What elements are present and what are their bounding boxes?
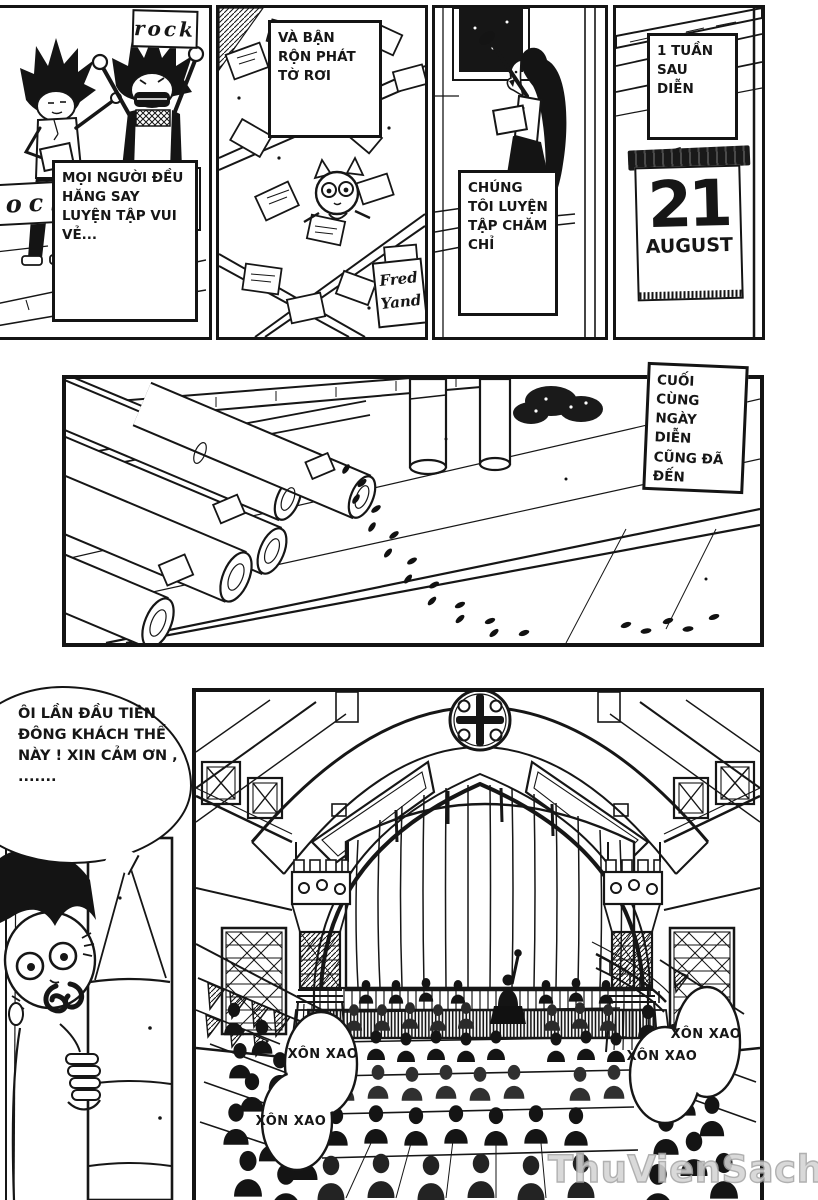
- panel-flyers: Fred Yand VÀ BẬN RỘN PHÁT TỜ RƠI: [216, 5, 428, 340]
- rock-sign-partial: rock: [0, 181, 56, 227]
- caption-one-week: 1 TUẦN SAU DIỄN: [647, 33, 738, 140]
- site-watermark: ThuVienSach.vn: [548, 1148, 818, 1191]
- fred-sign-line2: Yand: [377, 288, 425, 315]
- panel-rehearse: CHÚNG TÔI LUYỆN TẬP CHĂM CHỈ: [432, 5, 608, 340]
- caption-practice: MỌI NGƯỜI ĐỀU HĂNG SAY LUYỆN TẬP VUI VẺ.…: [52, 160, 198, 322]
- calendar: 21 AUGUST: [634, 165, 743, 302]
- manga-page: rock rock MỌI NGƯỜI ĐỀU HĂNG SAY LUYỆN T…: [0, 0, 818, 1200]
- crowd-murmur-left-upper: XÔN XAO: [275, 1047, 371, 1062]
- panel-calendar: 21 AUGUST 1 TUẦN SAU DIỄN: [613, 5, 765, 340]
- calendar-month: AUGUST: [638, 233, 741, 258]
- peeking-man-drawing: [0, 828, 190, 1200]
- crowd-murmur-left-lower: XÔN XAO: [243, 1114, 339, 1129]
- crowd-murmur-right-lower: XÔN XAO: [614, 1049, 710, 1064]
- ceiling-medallion: [450, 692, 510, 750]
- calendar-day: 21: [636, 173, 740, 238]
- crowd-murmur-right-upper: XÔN XAO: [658, 1027, 754, 1042]
- calendar-torn-edge: [640, 290, 742, 300]
- fred-yand-sign: Fred Yand: [372, 258, 428, 329]
- caption-show-day: CUỐI CÙNG NGÀY DIỄN CŨNG ĐÃ ĐẾN: [642, 362, 748, 494]
- column: [88, 838, 172, 1200]
- foliage: [513, 386, 603, 424]
- caption-flyers: VÀ BẬN RỘN PHÁT TỜ RƠI: [268, 20, 382, 138]
- peeking-man: [0, 848, 100, 1200]
- standing-columns: [410, 379, 510, 474]
- caption-rehearse: CHÚNG TÔI LUYỆN TẬP CHĂM CHỈ: [458, 170, 558, 316]
- rock-sign: rock: [132, 9, 199, 49]
- panel-practice: rock rock MỌI NGƯỜI ĐỀU HĂNG SAY LUYỆN T…: [0, 5, 212, 340]
